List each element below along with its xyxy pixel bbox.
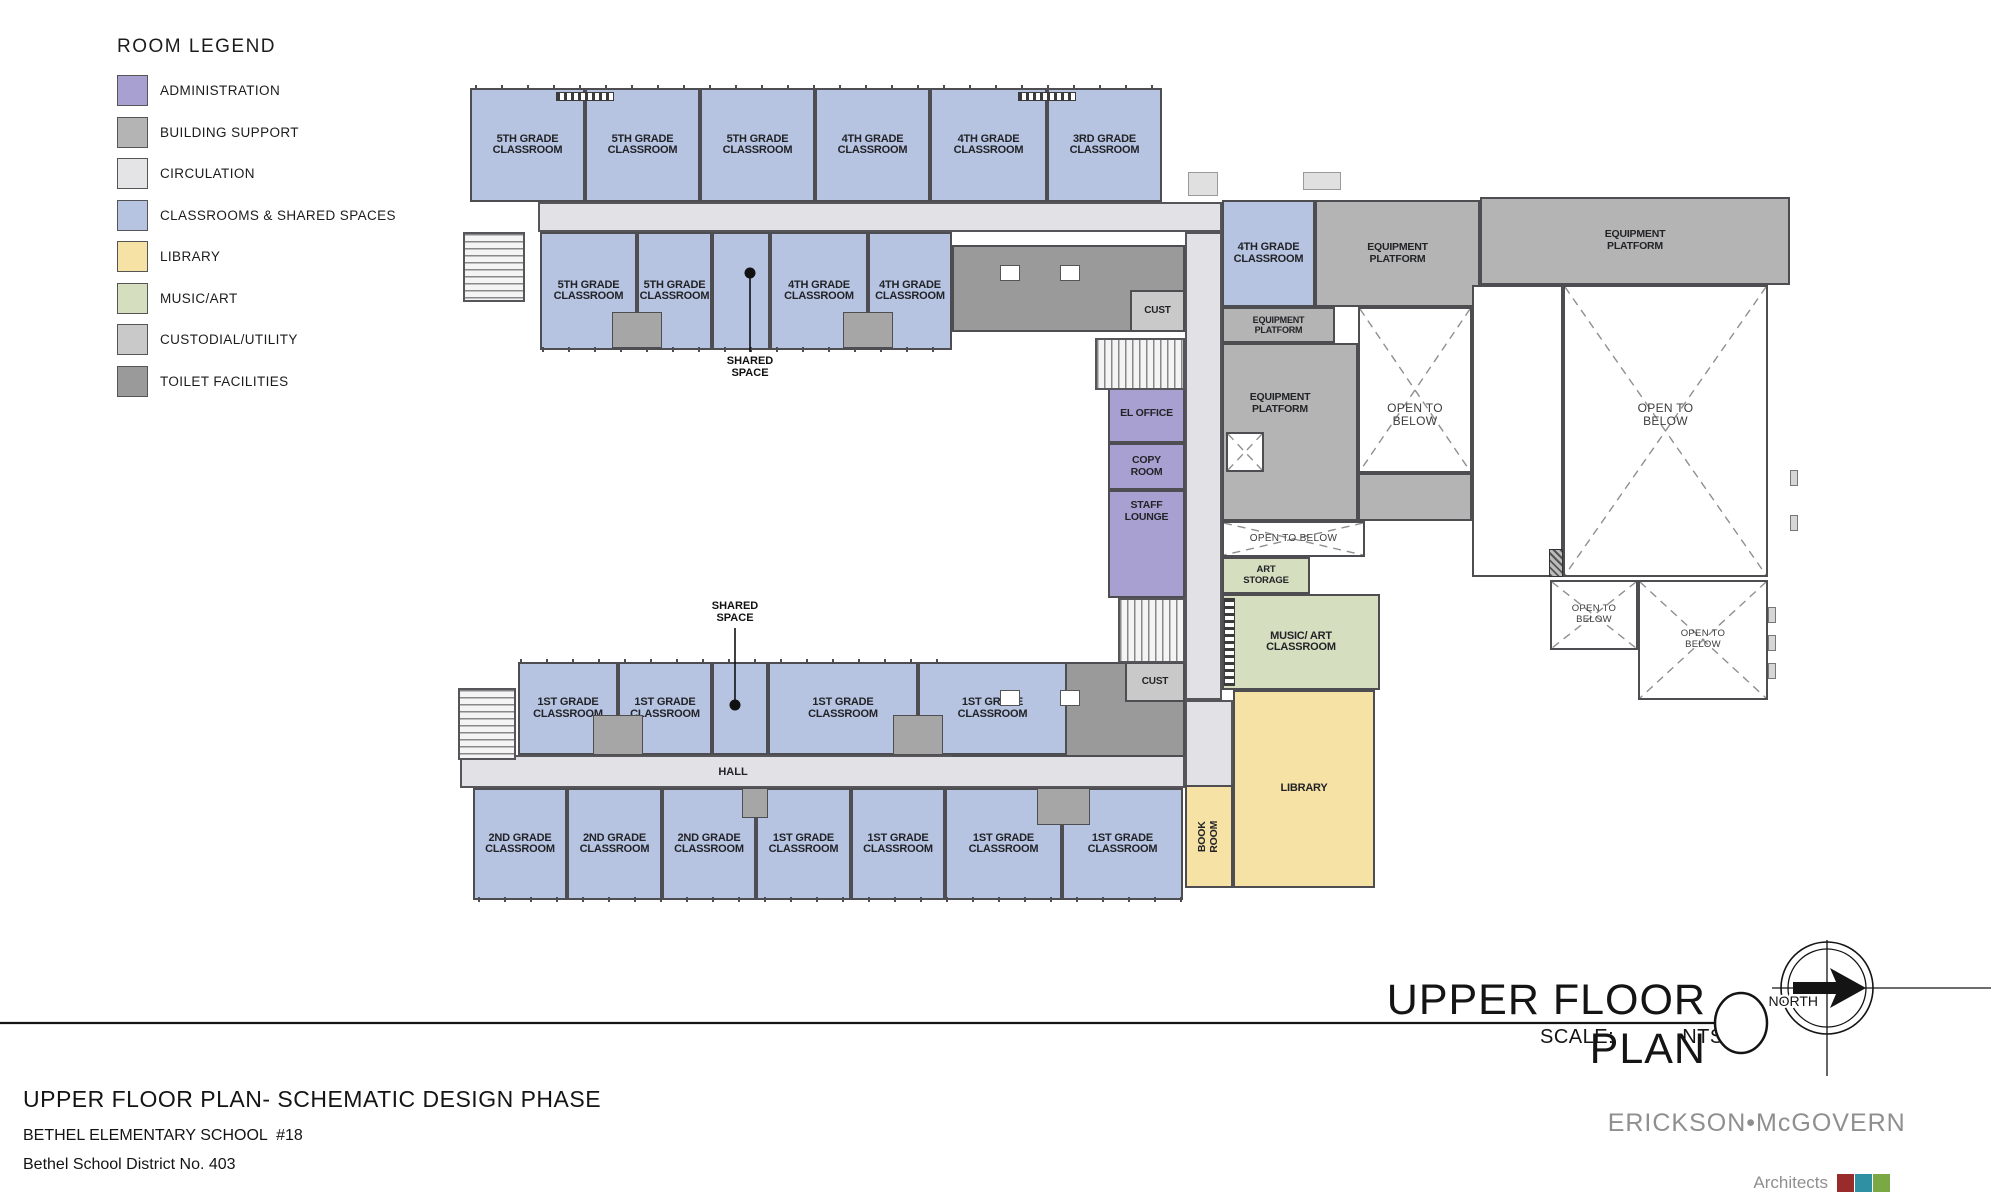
sheet-footer: UPPER FLOOR PLAN- SCHEMATIC DESIGN PHASE…	[23, 1086, 601, 1174]
shared-space-bottom	[712, 662, 768, 755]
architect-logo: ERICKSON•McGOVERN Architects	[1560, 1080, 1890, 1193]
locker-music-wall	[1224, 598, 1235, 686]
classroom-4th-1: 4TH GRADE CLASSROOM	[815, 88, 930, 202]
footer-title: UPPER FLOOR PLAN- SCHEMATIC DESIGN PHASE	[23, 1086, 601, 1113]
pod-1st-pair-b	[893, 715, 943, 755]
open-to-below-right: OPEN TO BELOW	[1563, 285, 1768, 577]
room-label: EL OFFICE	[1120, 408, 1173, 420]
pod-1st-pair-a	[593, 715, 643, 755]
room-label: EQUIPMENT PLATFORM	[1367, 242, 1428, 266]
shaft	[1549, 549, 1563, 577]
music-art-classroom: MUSIC/ ART CLASSROOM	[1222, 594, 1380, 690]
footer-district: Bethel School District No. 403	[23, 1156, 601, 1174]
wall-tab-c	[1768, 663, 1776, 679]
classroom-4th-5: 4TH GRADE CLASSROOM	[1222, 200, 1315, 307]
legend-swatch	[117, 324, 148, 355]
void-alley	[1472, 285, 1563, 577]
room-label: EQUIPMENT PLATFORM	[1605, 229, 1666, 253]
classroom-4th-2: 4TH GRADE CLASSROOM	[930, 88, 1047, 202]
legend-label: LIBRARY	[160, 249, 220, 264]
corridor-top-wing	[538, 202, 1222, 232]
footer-school: BETHEL ELEMENTARY SCHOOL #18	[23, 1127, 601, 1145]
legend-label: CLASSROOMS & SHARED SPACES	[160, 208, 396, 223]
legend-swatch	[117, 200, 148, 231]
room-label: EQUIPMENT PLATFORM	[1253, 315, 1305, 335]
legend-item-toilet-facilities: TOILET FACILITIES	[117, 367, 396, 396]
pod-5th-pair	[612, 312, 662, 348]
classroom-1st-5: 1ST GRADE CLASSROOM	[756, 788, 851, 900]
room-label: 4TH GRADE CLASSROOM	[838, 134, 908, 157]
legend-swatch	[117, 241, 148, 272]
logo-square-teal	[1855, 1174, 1872, 1192]
wall-tab-b	[1768, 635, 1776, 651]
open-to-below-strip: OPEN TO BELOW	[1222, 521, 1365, 557]
hall-label: HALL	[718, 766, 747, 778]
room-label: LIBRARY	[1280, 783, 1327, 795]
floor-plan-sheet: ROOM LEGEND ADMINISTRATIONBUILDING SUPPO…	[0, 0, 2000, 1200]
legend-item-administration: ADMINISTRATION	[117, 76, 396, 105]
legend-item-circulation: CIRCULATION	[117, 159, 396, 188]
shared-space-leader-bottom-label: SHARED SPACE	[712, 600, 758, 624]
pod-lower-a	[742, 788, 768, 818]
room-label: 5TH GRADE CLASSROOM	[608, 134, 678, 157]
room-label: 1ST GRADE CLASSROOM	[969, 833, 1039, 856]
corridor-junction	[1185, 700, 1233, 788]
stair-spine-lower	[1118, 598, 1185, 663]
classroom-5th-1: 5TH GRADE CLASSROOM	[470, 88, 585, 202]
room-legend: ROOM LEGEND ADMINISTRATIONBUILDING SUPPO…	[117, 36, 396, 408]
room-label: OPEN TO BELOW	[1572, 604, 1617, 625]
room-label: 4TH GRADE CLASSROOM	[875, 280, 945, 303]
room-label: 5TH GRADE CLASSROOM	[640, 280, 710, 303]
fixture-top-b	[1060, 265, 1080, 281]
legend-swatch	[117, 366, 148, 397]
window-strip-second-bar	[542, 347, 952, 352]
room-label: CUST	[1142, 676, 1168, 687]
stair-spine-upper	[1095, 338, 1185, 390]
wall-tab-e	[1790, 515, 1798, 531]
legend-label: TOILET FACILITIES	[160, 374, 289, 389]
logo-square-green	[1873, 1174, 1890, 1192]
room-label: 4TH GRADE CLASSROOM	[784, 280, 854, 303]
room-label: 1ST GRADE CLASSROOM	[1088, 833, 1158, 856]
room-label: 2ND GRADE CLASSROOM	[580, 833, 650, 856]
legend-title: ROOM LEGEND	[117, 36, 396, 58]
classroom-2nd-1: 2ND GRADE CLASSROOM	[473, 788, 567, 900]
corridor-spine	[1185, 232, 1222, 700]
window-strip-top-bar	[475, 85, 1162, 90]
room-label: ART STORAGE	[1243, 565, 1288, 586]
legend-item-custodial-utility: CUSTODIAL/UTILITY	[117, 325, 396, 354]
legend-swatch	[117, 75, 148, 106]
scale-row: SCALE: NTS	[1540, 1026, 1760, 1049]
legend-swatch	[117, 158, 148, 189]
open-to-below-low-left: OPEN TO BELOW	[1550, 580, 1638, 650]
room-label: 5TH GRADE CLASSROOM	[554, 280, 624, 303]
firm-name-left: ERICKSON	[1608, 1109, 1747, 1137]
room-label: OPEN TO BELOW	[1681, 629, 1726, 650]
room-label: CUST	[1144, 305, 1170, 316]
legend-swatch	[117, 117, 148, 148]
room-label: MUSIC/ ART CLASSROOM	[1266, 631, 1336, 654]
pod-4th-pair	[843, 312, 893, 348]
locker-top-bar-a	[556, 92, 614, 101]
north-arrow-icon: NORTH	[1768, 940, 1991, 1076]
legend-item-music-art: MUSIC/ART	[117, 284, 396, 313]
equipment-platform-strip: EQUIPMENT PLATFORM	[1222, 307, 1335, 343]
room-label: 5TH GRADE CLASSROOM	[493, 134, 563, 157]
wall-tab-d	[1790, 470, 1798, 486]
room-label: 3RD GRADE CLASSROOM	[1070, 134, 1140, 157]
firm-separator: •	[1746, 1109, 1756, 1137]
legend-item-library: LIBRARY	[117, 242, 396, 271]
equipment-platform-top-center: EQUIPMENT PLATFORM	[1315, 200, 1480, 307]
window-strip-upper-bar	[520, 659, 950, 664]
classroom-5th-3: 5TH GRADE CLASSROOM	[700, 88, 815, 202]
legend-item-classrooms-shared-spaces: CLASSROOMS & SHARED SPACES	[117, 201, 396, 230]
classroom-3rd-1: 3RD GRADE CLASSROOM	[1047, 88, 1162, 202]
elevator	[1226, 432, 1264, 472]
legend-swatch	[117, 283, 148, 314]
room-label: 4TH GRADE CLASSROOM	[1234, 242, 1304, 265]
scale-value: NTS	[1682, 1026, 1724, 1048]
legend-label: BUILDING SUPPORT	[160, 125, 299, 140]
window-strip-lower-bar	[478, 897, 1182, 902]
library: LIBRARY	[1233, 690, 1375, 888]
room-label: OPEN TO BELOW	[1250, 533, 1337, 544]
room-label: OPEN TO BELOW	[1638, 402, 1694, 429]
open-to-below-center: OPEN TO BELOW	[1358, 307, 1472, 473]
classroom-2nd-2: 2ND GRADE CLASSROOM	[567, 788, 662, 900]
cust-top: CUST	[1130, 290, 1185, 332]
room-label: 1ST GRADE CLASSROOM	[769, 833, 839, 856]
room-label: OPEN TO BELOW	[1387, 402, 1443, 429]
ext-box-b	[1303, 172, 1341, 190]
logo-square-red	[1837, 1174, 1854, 1192]
firm-name-right: McGOVERN	[1756, 1109, 1906, 1137]
legend-label: MUSIC/ART	[160, 291, 238, 306]
open-to-below-low-right: OPEN TO BELOW	[1638, 580, 1768, 700]
staff-lounge: STAFF LOUNGE	[1108, 490, 1185, 598]
room-label: 5TH GRADE CLASSROOM	[723, 134, 793, 157]
room-label: 1ST GRADE CLASSROOM	[808, 697, 878, 720]
legend-label: ADMINISTRATION	[160, 83, 280, 98]
shared-space-top	[712, 232, 770, 350]
room-label: COPY ROOM	[1131, 455, 1163, 479]
fixture-bottom-a	[1000, 690, 1020, 706]
sheet-title: UPPER FLOOR PLAN	[1330, 976, 1706, 1074]
locker-top-bar-b	[1018, 92, 1076, 101]
el-office: EL OFFICE	[1108, 385, 1185, 443]
ext-box-a	[1188, 172, 1218, 196]
room-label: 2ND GRADE CLASSROOM	[674, 833, 744, 856]
firm-tagline: Architects	[1753, 1173, 1828, 1193]
art-storage: ART STORAGE	[1222, 557, 1310, 594]
classroom-5th-2: 5TH GRADE CLASSROOM	[585, 88, 700, 202]
stair-bottom-wing-left	[458, 688, 516, 760]
legend-item-building-support: BUILDING SUPPORT	[117, 118, 396, 147]
wall-tab-a	[1768, 607, 1776, 623]
legend-label: CUSTODIAL/UTILITY	[160, 332, 298, 347]
legend-label: CIRCULATION	[160, 166, 255, 181]
room-label: 2ND GRADE CLASSROOM	[485, 833, 555, 856]
classroom-1st-6: 1ST GRADE CLASSROOM	[851, 788, 945, 900]
scale-label: SCALE:	[1540, 1026, 1614, 1048]
cust-bottom: CUST	[1125, 662, 1185, 702]
fixture-bottom-b	[1060, 690, 1080, 706]
corridor-hall	[460, 755, 1185, 788]
room-label: STAFF LOUNGE	[1125, 500, 1169, 524]
book-room: BOOK ROOM	[1185, 785, 1233, 888]
equipment-platform-under	[1358, 473, 1472, 521]
north-label: NORTH	[1768, 993, 1818, 1009]
room-label: 4TH GRADE CLASSROOM	[954, 134, 1024, 157]
pod-lower-b	[1037, 788, 1090, 825]
fixture-top-a	[1000, 265, 1020, 281]
stair-top-wing-left	[463, 232, 525, 302]
room-label: BOOK ROOM	[1197, 821, 1221, 853]
copy-room: COPY ROOM	[1108, 443, 1185, 490]
room-label: EQUIPMENT PLATFORM	[1250, 392, 1311, 416]
equipment-platform-top-right: EQUIPMENT PLATFORM	[1480, 197, 1790, 285]
room-label: 1ST GRADE CLASSROOM	[863, 833, 933, 856]
shared-space-leader-top-label: SHARED SPACE	[727, 355, 773, 379]
